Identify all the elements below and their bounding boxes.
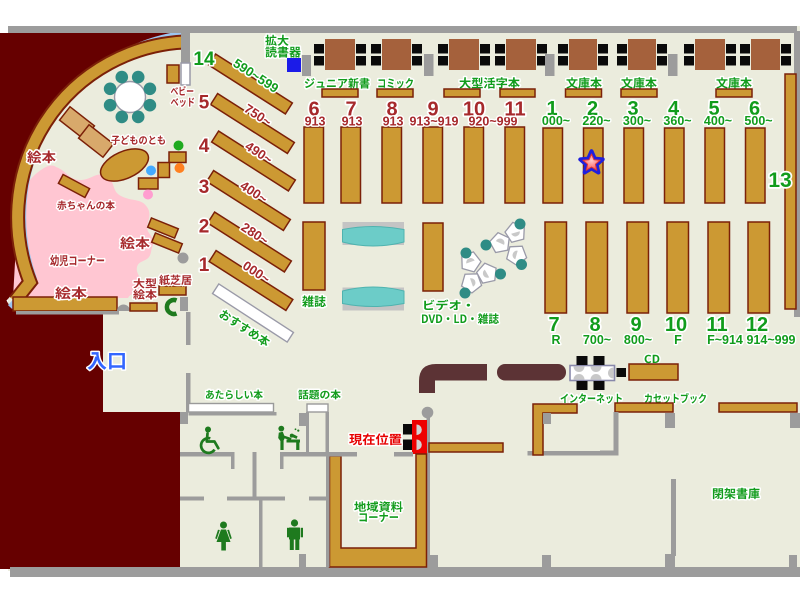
svg-text:11: 11 — [504, 99, 525, 121]
svg-text:F~914: F~914 — [707, 333, 743, 347]
svg-text:914~999: 914~999 — [746, 333, 795, 347]
svg-text:913: 913 — [305, 115, 326, 129]
svg-text:913: 913 — [342, 115, 363, 129]
svg-text:700~: 700~ — [583, 333, 611, 347]
svg-text:1: 1 — [199, 255, 210, 276]
svg-text:3: 3 — [199, 177, 210, 198]
svg-text:13: 13 — [768, 169, 791, 192]
svg-text:913~919: 913~919 — [409, 115, 458, 129]
svg-text:360~: 360~ — [663, 114, 691, 128]
svg-text:800~: 800~ — [624, 333, 652, 347]
svg-text:F: F — [674, 333, 682, 347]
svg-text:913: 913 — [383, 115, 404, 129]
svg-text:300~: 300~ — [623, 114, 651, 128]
svg-text:220~: 220~ — [582, 114, 610, 128]
svg-text:400~: 400~ — [704, 114, 732, 128]
svg-text:14: 14 — [193, 49, 215, 70]
svg-text:4: 4 — [199, 136, 210, 157]
svg-text:500~: 500~ — [744, 114, 772, 128]
svg-text:R: R — [551, 333, 560, 347]
svg-text:000~: 000~ — [542, 114, 570, 128]
svg-text:5: 5 — [199, 93, 210, 114]
svg-text:2: 2 — [199, 217, 210, 238]
